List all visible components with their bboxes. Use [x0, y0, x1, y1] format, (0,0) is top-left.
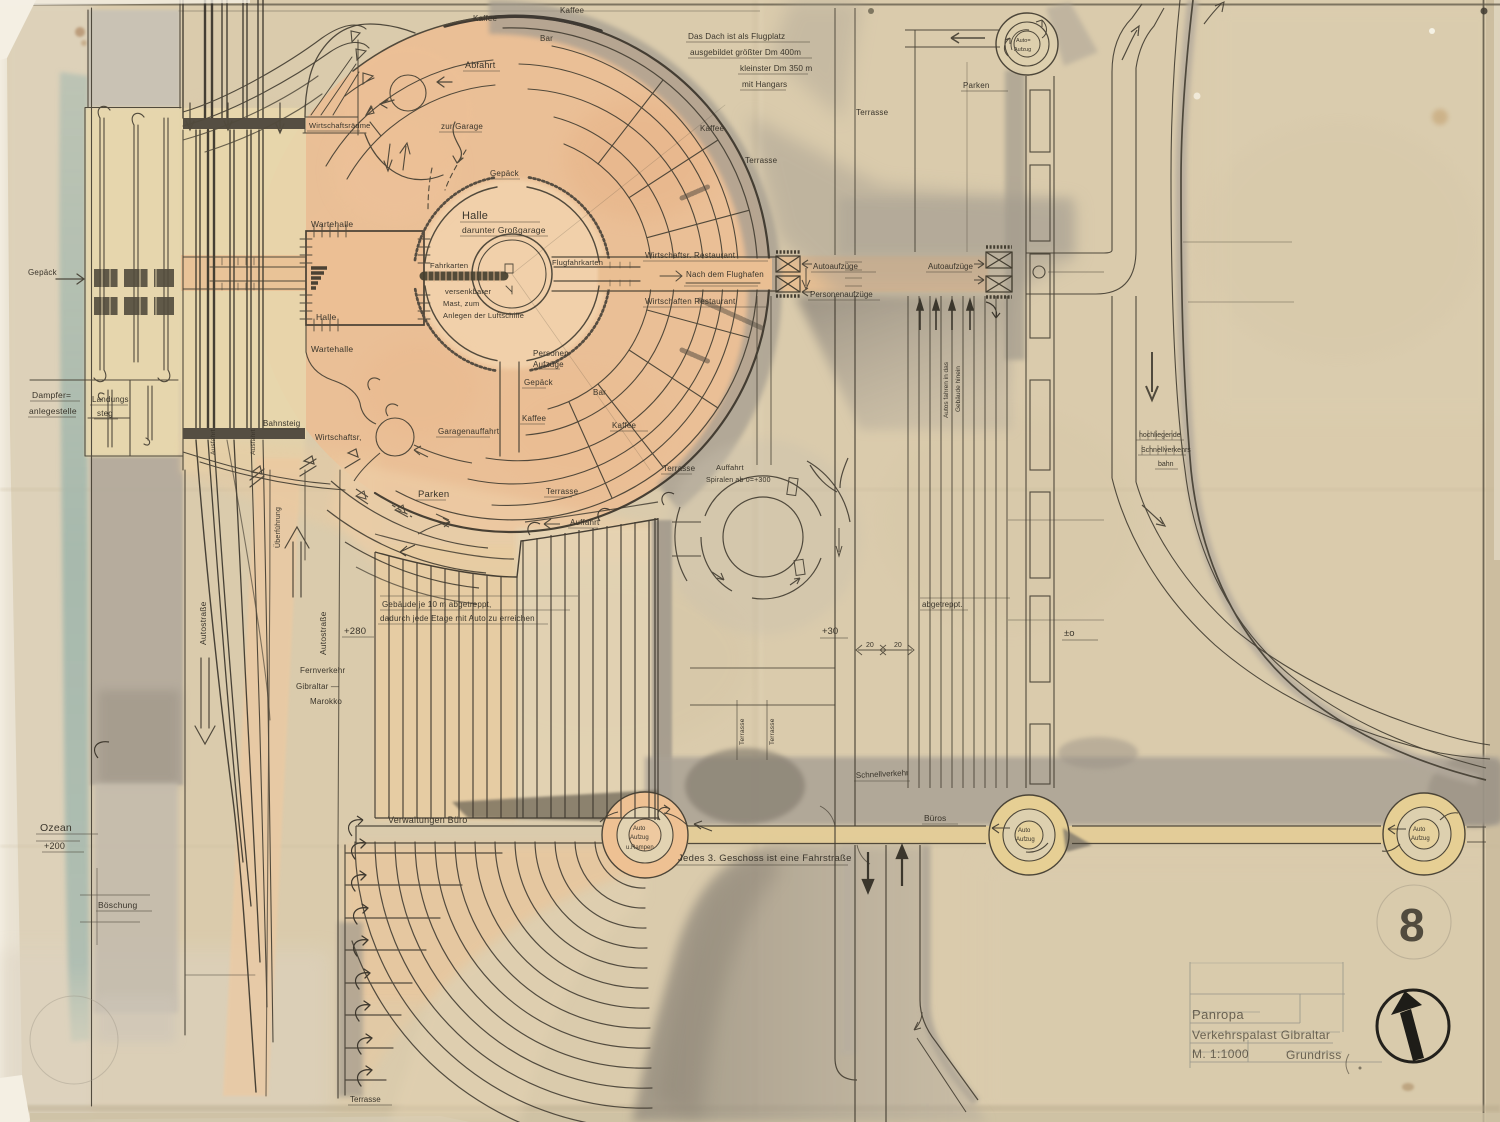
svg-text:u.Rampen: u.Rampen	[626, 845, 654, 851]
svg-text:anlegestelle: anlegestelle	[29, 406, 77, 416]
svg-text:hochliegende: hochliegende	[1139, 432, 1181, 439]
svg-text:Autostraße: Autostraße	[318, 611, 328, 655]
svg-text:steg: steg	[97, 409, 113, 418]
svg-text:±o: ±o	[1064, 628, 1075, 639]
svg-text:+200: +200	[44, 841, 65, 851]
svg-text:Das Dach ist als Flugplatz: Das Dach ist als Flugplatz	[688, 32, 785, 41]
svg-text:20: 20	[866, 642, 874, 649]
svg-text:Gepäck: Gepäck	[28, 268, 58, 277]
svg-text:Bar: Bar	[593, 388, 606, 397]
svg-text:Wartehalle: Wartehalle	[311, 219, 353, 229]
svg-text:Mast, zum: Mast, zum	[443, 299, 479, 308]
svg-text:Überführung: Überführung	[274, 507, 282, 548]
svg-text:Büros: Büros	[924, 813, 946, 823]
svg-text:Autostraße: Autostraße	[198, 601, 208, 645]
svg-text:Wirtschaftsräume: Wirtschaftsräume	[309, 121, 371, 130]
svg-text:M. 1:1000: M. 1:1000	[1192, 1047, 1249, 1061]
svg-text:Parken: Parken	[418, 489, 449, 500]
svg-text:Marokko: Marokko	[310, 697, 342, 706]
svg-text:Bahnsteig: Bahnsteig	[263, 419, 300, 428]
svg-text:Wirtschaften Restaurant: Wirtschaften Restaurant	[645, 297, 736, 306]
svg-text:Grundriss: Grundriss	[1286, 1048, 1342, 1062]
svg-text:Kaffee: Kaffee	[560, 6, 585, 15]
svg-text:Terrasse: Terrasse	[769, 718, 776, 745]
svg-text:Halle: Halle	[316, 312, 336, 322]
svg-text:Halle: Halle	[462, 210, 488, 222]
svg-text:Fahrkarten: Fahrkarten	[430, 261, 468, 270]
svg-text:Abfahrt: Abfahrt	[465, 60, 496, 70]
svg-text:versenkbarer: versenkbarer	[445, 287, 491, 296]
svg-text:Gepäck: Gepäck	[490, 169, 520, 178]
svg-text:Bar: Bar	[540, 34, 553, 43]
svg-text:Fernverkehr: Fernverkehr	[300, 666, 345, 675]
svg-text:Panropa: Panropa	[1192, 1007, 1244, 1022]
svg-text:Verwaltungen Büro: Verwaltungen Büro	[388, 815, 467, 825]
svg-text:Terrasse: Terrasse	[546, 487, 579, 496]
svg-text:Gibraltar —: Gibraltar —	[296, 682, 339, 691]
svg-text:Nach dem Flughafen: Nach dem Flughafen	[686, 270, 764, 279]
svg-text:Flugfahrkarten: Flugfahrkarten	[552, 258, 603, 267]
svg-text:Terrasse: Terrasse	[663, 464, 696, 473]
svg-text:Ausfahrt: Ausfahrt	[210, 429, 217, 455]
svg-text:Gepäck: Gepäck	[524, 378, 554, 387]
svg-text:Gebäude hinein: Gebäude hinein	[955, 366, 962, 412]
svg-text:Kaffee: Kaffee	[700, 124, 725, 133]
svg-text:zur Garage: zur Garage	[441, 122, 483, 131]
svg-text:Aufzug: Aufzug	[630, 835, 649, 841]
svg-text:Terrasse: Terrasse	[745, 156, 778, 165]
svg-text:Personen: Personen	[533, 349, 569, 358]
svg-text:Wartehalle: Wartehalle	[311, 344, 353, 354]
svg-text:bahn: bahn	[1158, 461, 1174, 468]
svg-text:Verkehrspalast Gibraltar: Verkehrspalast Gibraltar	[1192, 1028, 1330, 1042]
svg-text:Aufzug: Aufzug	[1016, 837, 1035, 843]
svg-text:Auto: Auto	[633, 826, 646, 832]
svg-text:Anlegen der Luftschiffe: Anlegen der Luftschiffe	[443, 311, 524, 320]
svg-text:Kaffee: Kaffee	[612, 421, 637, 430]
svg-text:20: 20	[894, 642, 902, 649]
svg-text:Kaffee: Kaffee	[522, 414, 547, 423]
svg-text:Terrasse: Terrasse	[350, 1095, 381, 1104]
svg-text:Wirtschaftsr,: Wirtschaftsr,	[315, 433, 362, 442]
svg-text:8: 8	[1399, 899, 1425, 951]
svg-text:Dampfer=: Dampfer=	[32, 390, 71, 400]
svg-text:Autoaufzüge: Autoaufzüge	[813, 262, 858, 271]
svg-text:kleinster Dm 350 m: kleinster Dm 350 m	[740, 64, 812, 73]
svg-text:Ozean: Ozean	[40, 822, 72, 834]
svg-text:darunter Großgarage: darunter Großgarage	[462, 225, 546, 235]
svg-text:Aufzüge: Aufzüge	[533, 360, 564, 369]
svg-text:Terrasse: Terrasse	[739, 718, 746, 745]
svg-text:abgetreppt.: abgetreppt.	[922, 600, 962, 609]
svg-text:Aufzug: Aufzug	[1014, 47, 1031, 53]
svg-text:Wirtschaftsr. Restaurant: Wirtschaftsr. Restaurant	[645, 251, 736, 260]
svg-text:Jedes 3. Geschoss ist eine Fah: Jedes 3. Geschoss ist eine Fahrstraße	[678, 853, 852, 864]
svg-text:Garagenauffahrt: Garagenauffahrt	[438, 427, 500, 436]
svg-text:Gebäude je 10 m abgetreppt,: Gebäude je 10 m abgetreppt,	[382, 600, 491, 609]
svg-text:Ausfahrt: Ausfahrt	[250, 429, 257, 455]
svg-text:Personenaufzüge: Personenaufzüge	[810, 290, 873, 299]
svg-text:Kaffee: Kaffee	[473, 14, 498, 23]
svg-text:mit Hangars: mit Hangars	[742, 80, 787, 89]
svg-text:Böschung: Böschung	[98, 900, 137, 910]
svg-text:Auffahrt: Auffahrt	[570, 518, 600, 527]
svg-text:Auto=: Auto=	[1016, 38, 1031, 44]
svg-text:ausgebildet größter Dm 400m: ausgebildet größter Dm 400m	[690, 48, 801, 57]
svg-text:Terrasse: Terrasse	[856, 108, 889, 117]
svg-text:Auffahrt: Auffahrt	[716, 463, 744, 472]
svg-text:Auto: Auto	[1018, 828, 1031, 834]
svg-text:Aufzug: Aufzug	[1411, 836, 1430, 842]
svg-text:+30: +30	[822, 626, 838, 637]
svg-text:dadurch jede Etage mit Auto zu: dadurch jede Etage mit Auto zu erreichen	[380, 614, 535, 623]
svg-text:+280: +280	[344, 626, 366, 637]
svg-text:Autos fahren in das: Autos fahren in das	[943, 361, 950, 418]
svg-text:Auto: Auto	[1413, 827, 1426, 833]
svg-text:Landungs: Landungs	[92, 395, 129, 404]
svg-text:Autoaufzüge: Autoaufzüge	[928, 262, 973, 271]
